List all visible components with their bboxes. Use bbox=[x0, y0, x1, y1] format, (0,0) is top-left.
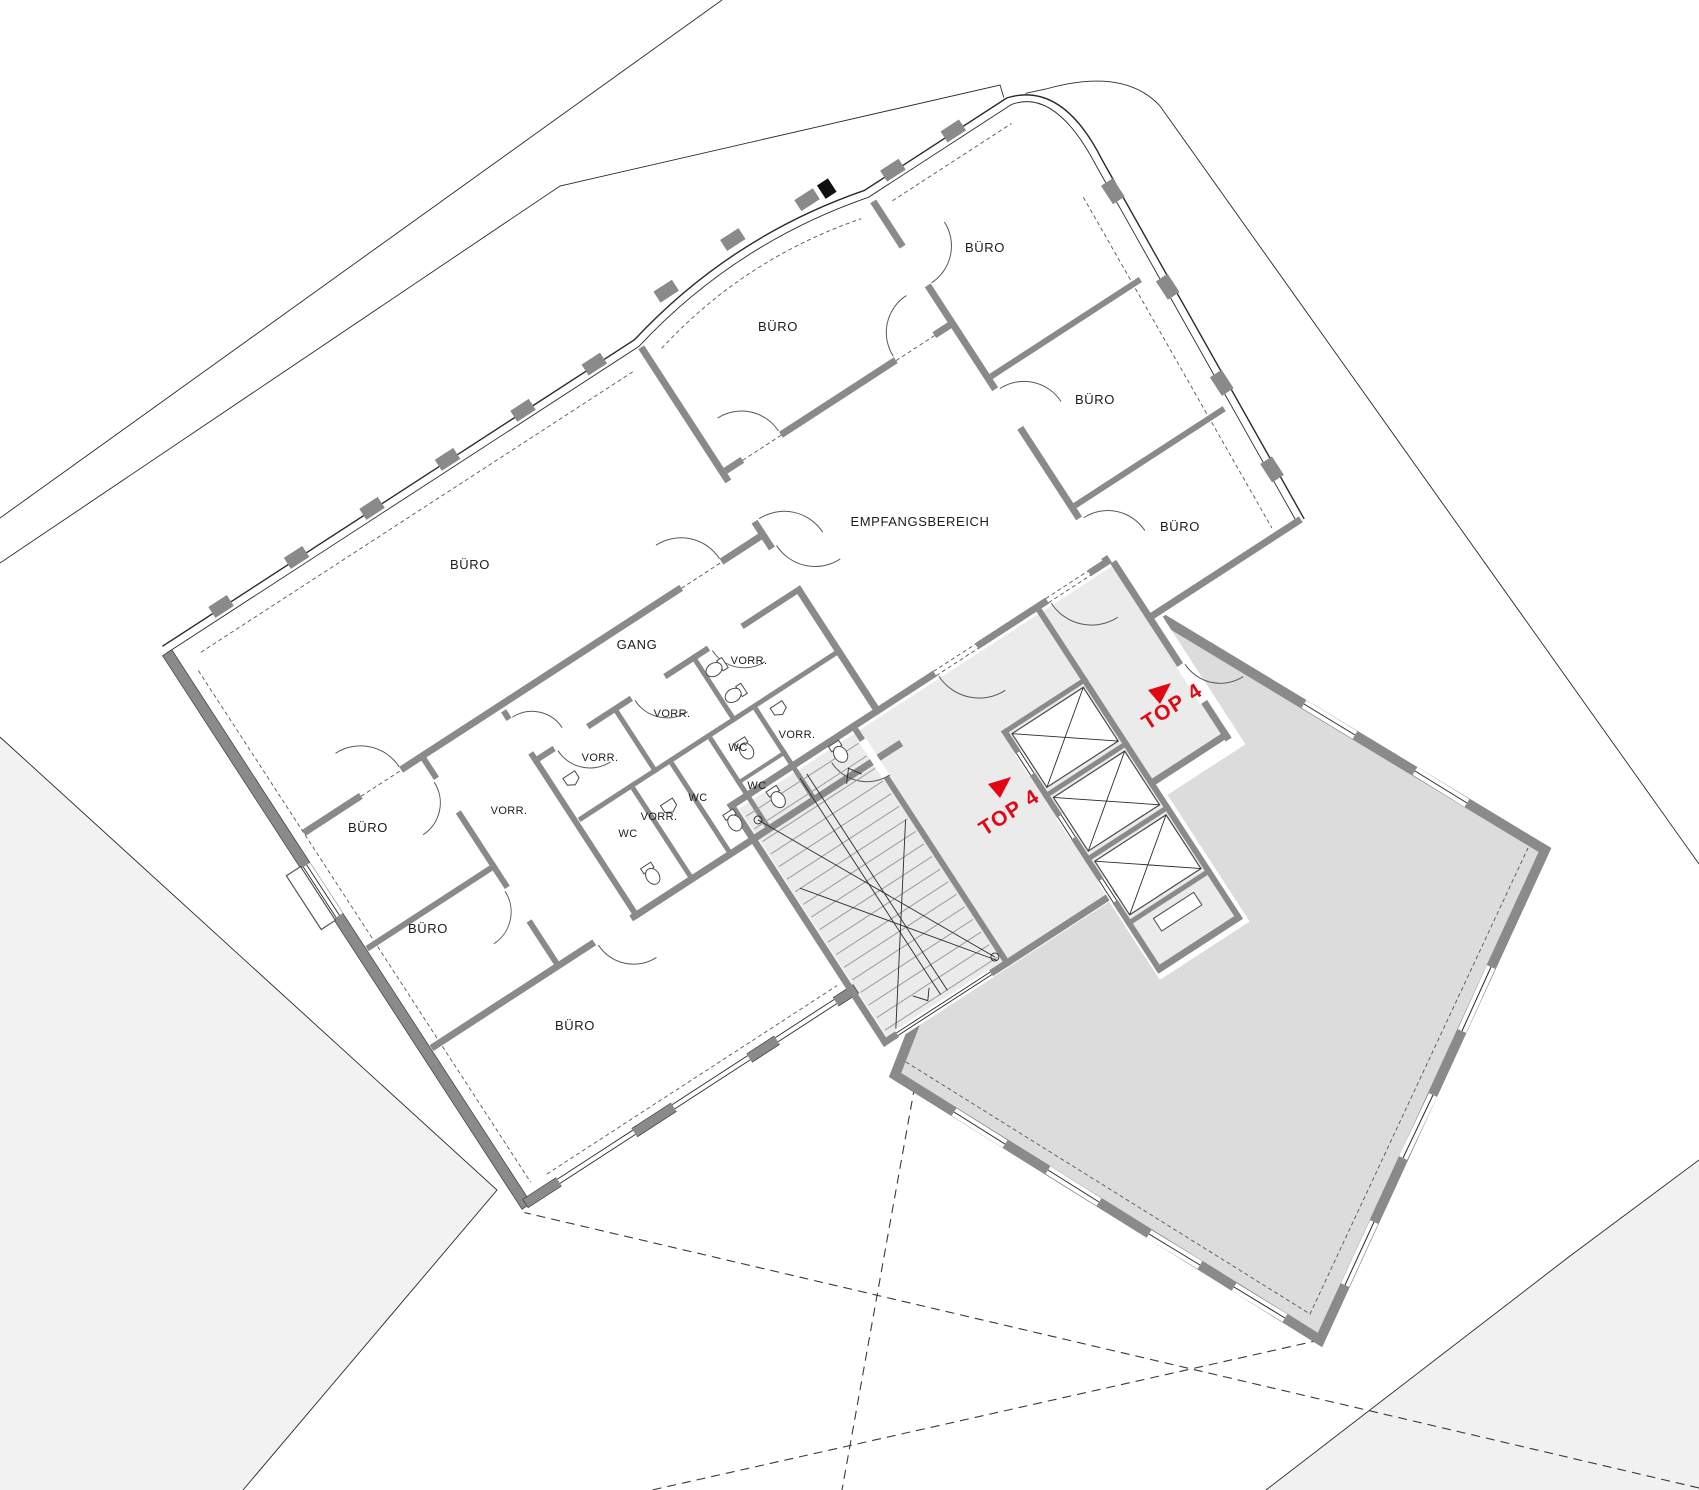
floor-plan-page: BÜRO BÜRO BÜRO BÜRO BÜRO BÜRO BÜRO BÜRO … bbox=[0, 0, 1699, 1490]
room-label-buero-south: BÜRO bbox=[555, 1018, 595, 1033]
room-label-vorr-2: VORR. bbox=[654, 708, 691, 720]
room-label-buero-east-1: BÜRO bbox=[1075, 392, 1115, 407]
room-label-wc-4: WC bbox=[618, 828, 637, 840]
room-label-buero-east-2: BÜRO bbox=[1160, 519, 1200, 534]
room-label-vorr-4: VORR. bbox=[779, 729, 816, 741]
floor-plan-canvas: BÜRO BÜRO BÜRO BÜRO BÜRO BÜRO BÜRO BÜRO … bbox=[0, 0, 1699, 1490]
room-label-vorr-1: VORR. bbox=[731, 655, 768, 667]
room-label-empfangsbereich: EMPFANGSBEREICH bbox=[850, 514, 989, 529]
room-label-buero-top-mid: BÜRO bbox=[758, 319, 798, 334]
facade-entry-mark bbox=[817, 178, 837, 198]
room-label-buero-west-1: BÜRO bbox=[348, 820, 388, 835]
room-label-wc-1: WC bbox=[728, 742, 747, 754]
room-label-wc-2: WC bbox=[747, 780, 766, 792]
room-label-vorr-6: VORR. bbox=[491, 805, 528, 817]
room-label-buero-nw: BÜRO bbox=[450, 557, 490, 572]
room-label-vorr-3: VORR. bbox=[582, 752, 619, 764]
room-label-vorr-5: VORR. bbox=[641, 811, 678, 823]
room-label-buero-west-2: BÜRO bbox=[408, 921, 448, 936]
room-label-buero-ne: BÜRO bbox=[965, 240, 1005, 255]
room-label-gang: GANG bbox=[617, 637, 658, 652]
room-label-wc-3: WC bbox=[688, 792, 707, 804]
